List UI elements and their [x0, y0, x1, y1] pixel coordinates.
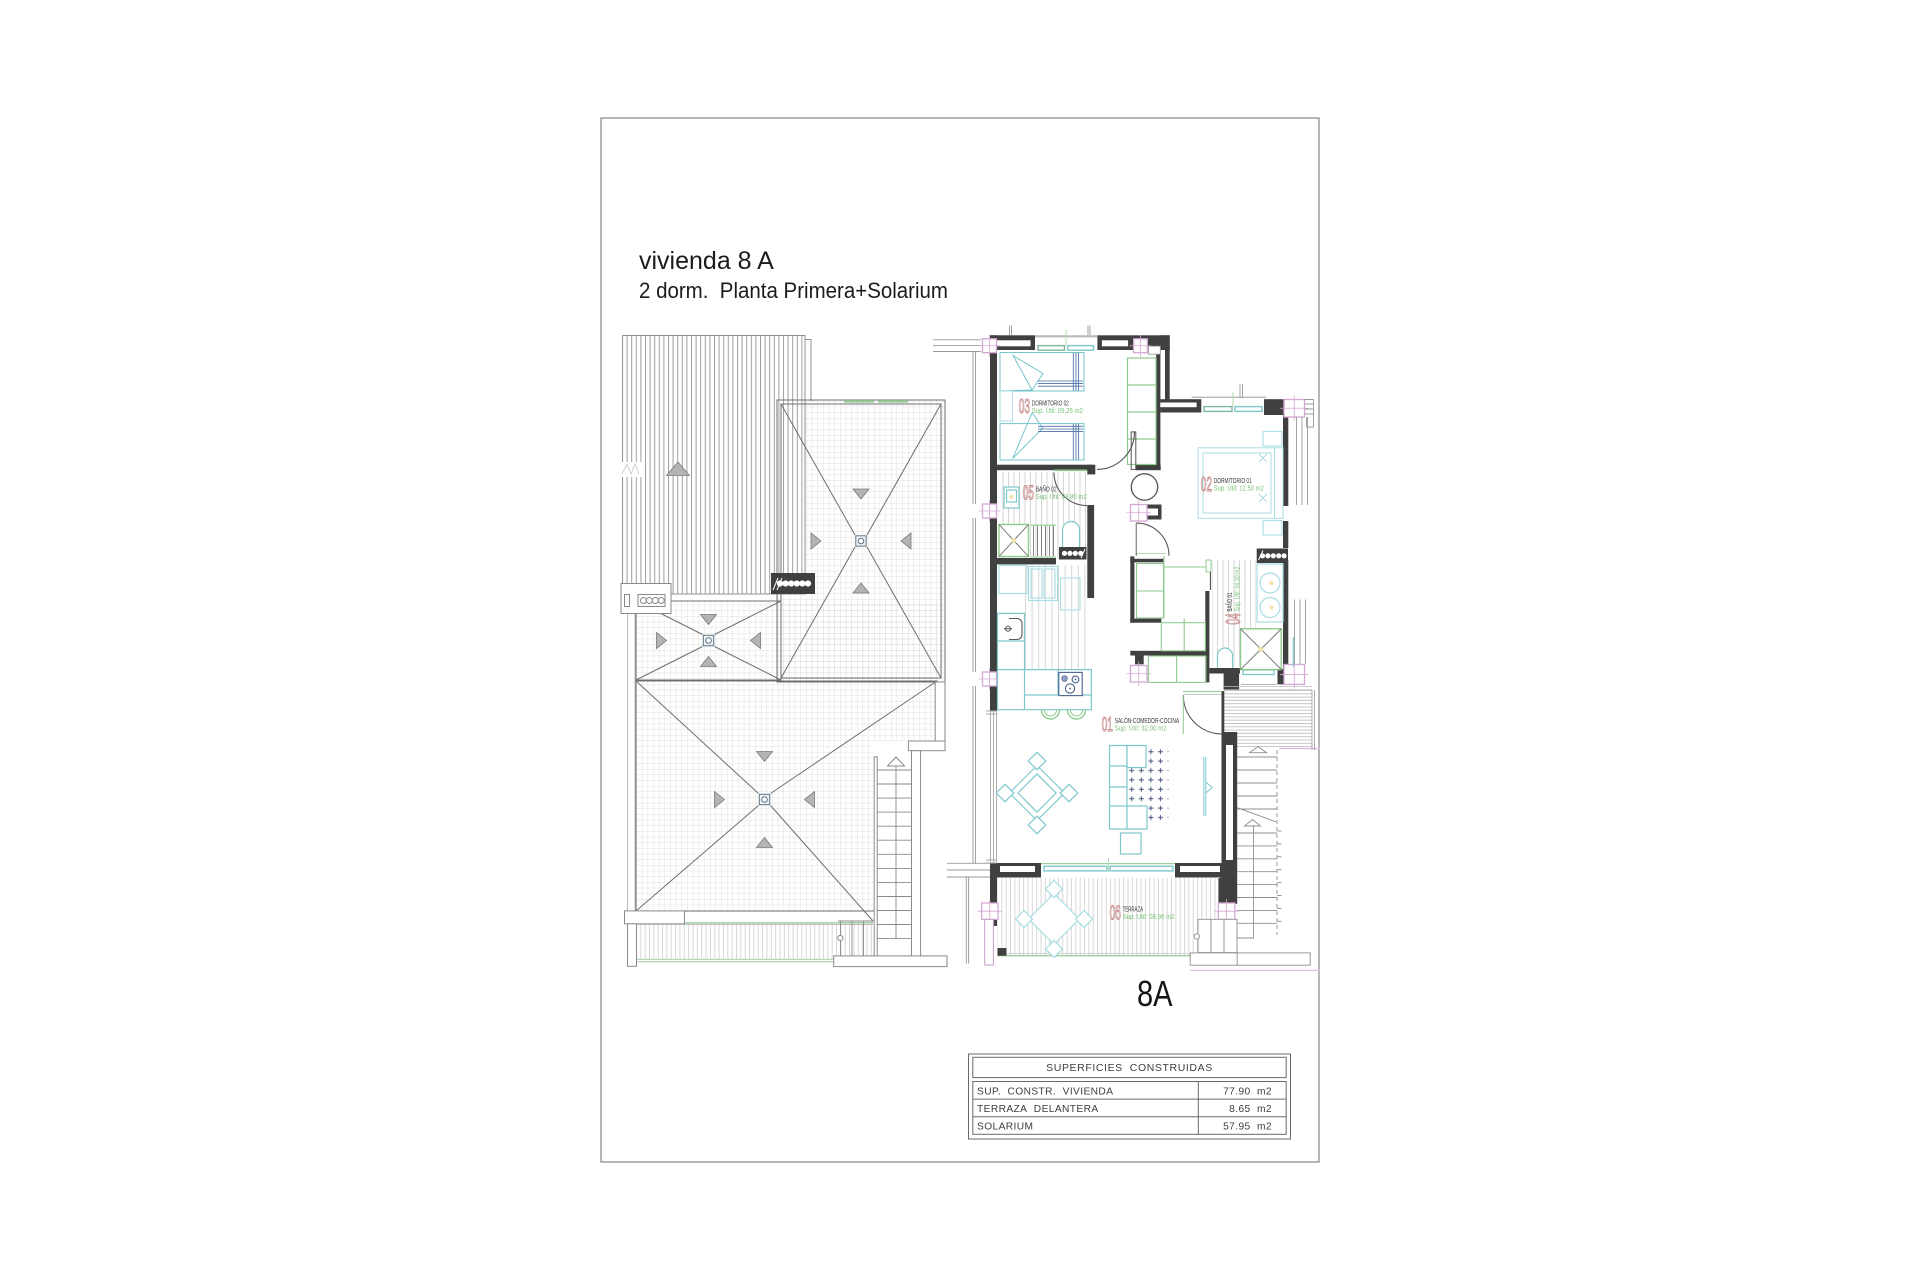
svg-text:06: 06 [1110, 902, 1121, 924]
svg-text:DORMITORIO 02: DORMITORIO 02 [1032, 400, 1069, 407]
svg-text:2 dorm. Planta Primera+Solari: 2 dorm. Planta Primera+Solarium [639, 278, 948, 303]
svg-text:05: 05 [1023, 482, 1034, 504]
svg-text:BAÑO 01: BAÑO 01 [1225, 592, 1234, 611]
svg-text:vivienda 8 A: vivienda 8 A [639, 247, 774, 275]
svg-text:Sup. Útil: 04,30 m2: Sup. Útil: 04,30 m2 [1233, 566, 1242, 611]
svg-text:SUP. CONSTR. VIVIENDA: SUP. CONSTR. VIVIENDA [977, 1087, 1113, 1098]
svg-text:02: 02 [1201, 474, 1212, 496]
svg-text:SUPERFICIES CONSTRUIDAS: SUPERFICIES CONSTRUIDAS [1046, 1062, 1213, 1074]
svg-text:Sup. Útil: 32,00 m2: Sup. Útil: 32,00 m2 [1115, 723, 1167, 732]
svg-text:8A: 8A [1137, 973, 1173, 1014]
svg-text:77.90 m2: 77.90 m2 [1223, 1087, 1272, 1098]
svg-text:Sup. Útil: 12,50 m2: Sup. Útil: 12,50 m2 [1214, 483, 1264, 492]
svg-text:BAÑO 02: BAÑO 02 [1036, 485, 1057, 494]
svg-text:04: 04 [1223, 613, 1245, 624]
svg-text:TERRAZA: TERRAZA [1123, 907, 1144, 914]
svg-text:Sup. Útil: 03,80 m2: Sup. Útil: 03,80 m2 [1036, 492, 1087, 501]
svg-text:03: 03 [1019, 396, 1030, 418]
svg-text:Sup. Útil: 09,25 m2: Sup. Útil: 09,25 m2 [1032, 406, 1083, 415]
svg-text:SALÓN-COMEDOR-COCINA: SALÓN-COMEDOR-COCINA [1115, 716, 1180, 725]
svg-text:57.95 m2: 57.95 m2 [1223, 1122, 1272, 1133]
svg-text:01: 01 [1102, 714, 1113, 736]
svg-text:8.65 m2: 8.65 m2 [1229, 1104, 1272, 1115]
svg-text:Sup. Útil: 08,90 m2: Sup. Útil: 08,90 m2 [1123, 912, 1175, 921]
svg-text:SOLARIUM: SOLARIUM [977, 1122, 1033, 1133]
svg-text:DORMITORIO 01: DORMITORIO 01 [1214, 478, 1252, 485]
svg-text:TERRAZA DELANTERA: TERRAZA DELANTERA [977, 1104, 1099, 1115]
